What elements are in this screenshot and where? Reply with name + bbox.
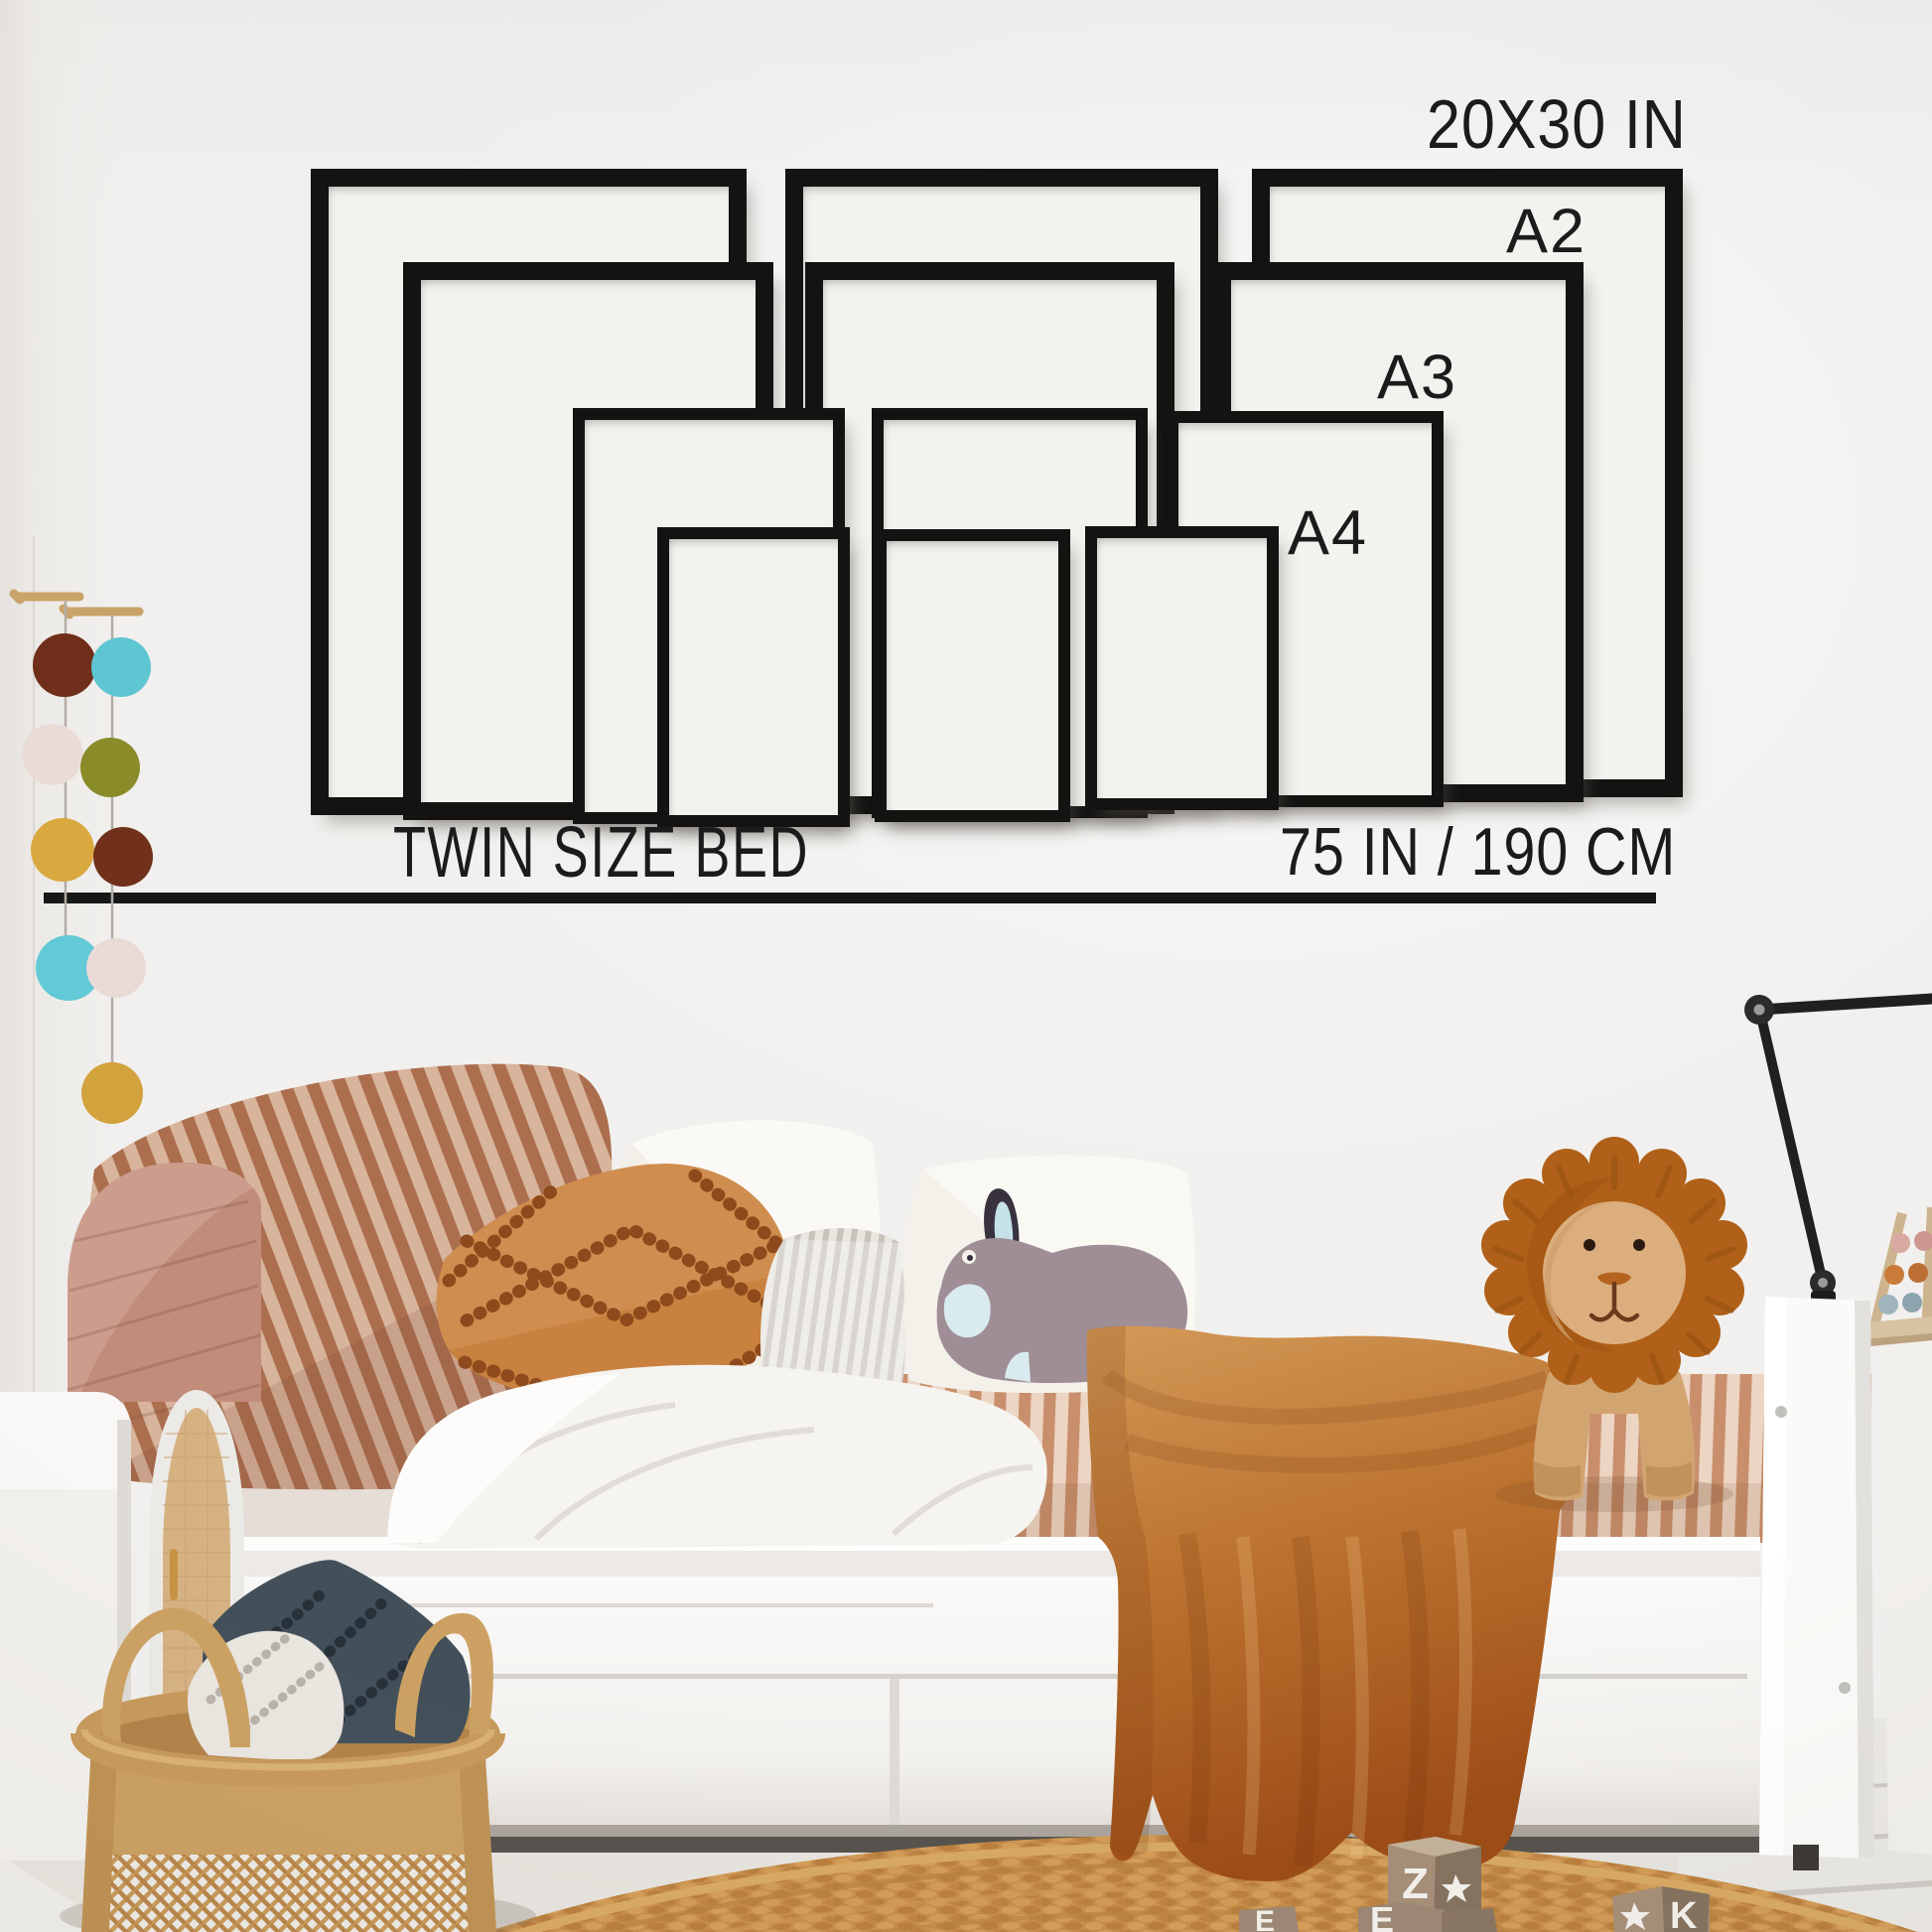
svg-text:Z: Z [1402, 1860, 1429, 1908]
svg-text:E: E [1255, 1905, 1275, 1932]
svg-text:K: K [1670, 1895, 1698, 1932]
svg-text:E: E [1370, 1899, 1394, 1932]
